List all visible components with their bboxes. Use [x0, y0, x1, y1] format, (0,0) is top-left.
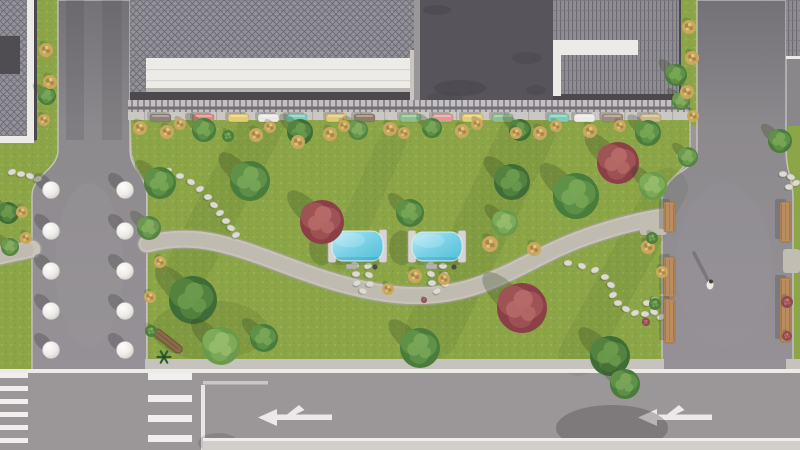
bush-highlight: [387, 130, 390, 133]
bush-body: [383, 122, 397, 136]
pavement-stain: [512, 52, 542, 64]
bush-body: [222, 130, 234, 142]
bush-highlight: [45, 46, 48, 49]
bench-highlight: [550, 115, 567, 117]
bush-body: [642, 318, 650, 326]
bush-highlight: [164, 133, 167, 136]
tree-foliage-light: [772, 138, 780, 146]
canopy-under-shade: [416, 257, 458, 260]
tree-foliage-light: [1, 210, 8, 217]
bush-highlight: [619, 122, 622, 125]
tree-foliage-light: [506, 301, 523, 318]
parapet-tile-strip: [128, 100, 690, 112]
tree-foliage-light: [47, 95, 52, 100]
tree-foliage-light: [504, 222, 512, 230]
road-tire-shading: [102, 0, 122, 140]
tree-foliage-light: [426, 125, 433, 132]
tree-foliage-light: [220, 344, 231, 355]
stepping-stone: [366, 281, 374, 287]
bush-highlight: [149, 293, 152, 296]
bush-highlight: [343, 122, 346, 125]
bush-highlight: [148, 332, 150, 334]
bush-highlight: [159, 258, 162, 261]
bush-body: [160, 125, 174, 139]
building-c-right-parapet: [410, 50, 414, 100]
tree-foliage-light: [352, 127, 359, 134]
bush-body: [264, 121, 276, 133]
tree-foliage-light: [652, 185, 660, 193]
bush-body: [455, 124, 469, 138]
bush-body: [154, 256, 166, 268]
sphere-bollard: [117, 303, 134, 320]
bush-speckle: [415, 275, 419, 279]
bush-body: [144, 291, 156, 303]
bush-body: [43, 75, 57, 89]
bush-highlight: [297, 138, 300, 141]
palm-center: [163, 356, 166, 359]
bush-highlight: [784, 303, 786, 305]
tree-foliage-light: [511, 181, 522, 192]
tree-foliage-light: [407, 342, 421, 356]
bush-speckle: [256, 134, 260, 138]
stepping-stone: [17, 171, 25, 177]
bush-highlight: [49, 78, 52, 81]
pedestrian-head: [709, 280, 713, 284]
bottom-sidewalk: [203, 441, 800, 450]
stepping-stone: [641, 311, 649, 317]
bush-speckle: [167, 131, 171, 135]
stepping-stone: [204, 194, 212, 200]
bush-highlight: [515, 129, 518, 132]
bush-highlight: [424, 298, 425, 299]
tree-foliage-light: [624, 383, 633, 392]
bush-highlight: [23, 239, 25, 241]
bush-highlight: [617, 127, 619, 129]
crosswalk-stripe: [148, 415, 192, 422]
bush-highlight: [255, 131, 258, 134]
waste-bin: [451, 264, 456, 269]
bush-speckle: [590, 130, 594, 134]
bush-highlight: [785, 337, 787, 339]
bush-body: [510, 127, 522, 139]
tree-foliage-light: [500, 177, 512, 189]
stepping-stone: [564, 260, 572, 266]
bush-highlight: [43, 51, 46, 54]
bush-highlight: [691, 54, 694, 57]
bench-highlight: [576, 115, 593, 117]
bush-speckle: [689, 26, 693, 30]
tree-foliage-light: [779, 140, 786, 147]
crosswalk-stripe: [0, 399, 28, 404]
stepping-stone: [352, 271, 360, 277]
bush-body: [291, 135, 305, 149]
bush-highlight: [644, 322, 646, 324]
building-e-roof: [786, 0, 800, 58]
tree-foliage-light: [675, 98, 681, 104]
waste-bin: [372, 264, 377, 269]
bush-body: [38, 114, 50, 126]
bush-body: [382, 283, 394, 295]
bush-highlight: [329, 130, 332, 133]
tree-foliage-light: [141, 225, 149, 233]
tree-foliage-light: [159, 182, 169, 192]
bush-speckle: [151, 330, 154, 333]
bush-highlight: [389, 125, 392, 128]
bush-body: [646, 232, 658, 244]
tree-foliage-light: [605, 157, 619, 171]
building-a-inner-court: [0, 36, 20, 74]
stepping-stone: [428, 280, 436, 286]
right-corner-curb: [786, 359, 800, 370]
site-plan-canvas: [0, 0, 800, 450]
bush-body: [782, 331, 792, 341]
bench-highlight: [642, 115, 659, 117]
bush-highlight: [689, 59, 692, 62]
bush-speckle: [140, 127, 144, 131]
bush-speckle: [620, 125, 623, 128]
canopy-seam: [146, 80, 410, 81]
bench-highlight: [604, 115, 621, 117]
bush-highlight: [589, 127, 592, 130]
bush-highlight: [461, 127, 464, 130]
canopy-seam: [146, 69, 410, 70]
bush-speckle: [180, 123, 183, 126]
bench-highlight: [356, 115, 373, 117]
bush-body: [527, 242, 541, 256]
bush-speckle: [787, 335, 790, 338]
bench-highlight: [152, 115, 169, 117]
bush-highlight: [553, 127, 555, 129]
bench-highlight: [328, 115, 345, 117]
crosswalk-stripe: [0, 386, 28, 391]
tree-foliage-light: [255, 334, 265, 344]
bush-body: [649, 298, 661, 310]
stepping-stone: [222, 218, 230, 224]
bush-speckle: [344, 125, 347, 128]
bush-highlight: [489, 239, 493, 243]
bush-highlight: [651, 234, 654, 237]
bush-highlight: [43, 116, 46, 119]
building-a-edge-shadow: [34, 0, 37, 140]
tree-foliage-light: [644, 182, 654, 192]
bush-highlight: [688, 23, 691, 26]
tree-foliage-light: [682, 154, 689, 161]
canopy-under-shade: [336, 257, 379, 260]
bush-highlight: [157, 263, 159, 265]
sphere-bollard: [117, 182, 134, 199]
bush-highlight: [269, 123, 272, 126]
bush-highlight: [385, 290, 387, 292]
bush-body: [550, 120, 562, 132]
bush-speckle: [330, 133, 334, 137]
bush-highlight: [476, 120, 479, 123]
tree-foliage-light: [41, 93, 47, 99]
bush-highlight: [19, 213, 21, 215]
bush-body: [482, 236, 498, 252]
bush-highlight: [645, 320, 647, 322]
building-a-white-parapet: [27, 0, 34, 137]
tree-foliage-light: [196, 127, 204, 135]
tree-foliage-light: [178, 293, 194, 309]
bush-highlight: [387, 285, 390, 288]
canopy-edge-shade: [146, 88, 410, 92]
building-a-bottom-parapet: [0, 136, 34, 143]
sphere-bollard: [43, 182, 60, 199]
bush-highlight: [179, 120, 182, 123]
bush-highlight: [652, 305, 654, 307]
bush-speckle: [652, 237, 655, 240]
bush-speckle: [556, 125, 559, 128]
bench-highlight: [260, 115, 277, 117]
bush-body: [39, 43, 53, 57]
lane-line-horizontal: [203, 381, 268, 385]
canopy-sheen: [415, 233, 445, 248]
bush-body: [471, 118, 483, 130]
bush-body: [133, 121, 147, 135]
tree-foliage-light: [308, 216, 323, 231]
tree-foliage-light: [409, 212, 417, 220]
tree-foliage-light: [249, 179, 261, 191]
tree-foliage-light: [681, 100, 686, 105]
stepping-stone: [176, 173, 184, 179]
bush-speckle: [646, 321, 648, 323]
bush-highlight: [692, 112, 695, 115]
bush-speckle: [22, 211, 25, 214]
bush-highlight: [225, 137, 227, 139]
bush-body: [687, 110, 699, 122]
tree-foliage-light: [575, 194, 589, 208]
bush-body: [145, 325, 157, 337]
sphere-bollard: [117, 263, 134, 280]
bush-speckle: [298, 141, 302, 145]
crosswalk-stripe: [0, 438, 28, 443]
bush-speckle: [26, 237, 29, 240]
crosswalk-stripe: [0, 425, 28, 430]
tree-foliage-light: [321, 220, 334, 233]
bush-highlight: [537, 134, 540, 137]
bush-speckle: [516, 132, 519, 135]
tree-foliage-light: [150, 178, 161, 189]
bush-highlight: [786, 298, 789, 301]
bush-speckle: [228, 135, 231, 138]
bush-speckle: [444, 278, 447, 281]
tree-foliage-light: [597, 350, 611, 364]
bush-highlight: [786, 333, 788, 335]
mini-bench: [426, 264, 437, 269]
bush-highlight: [166, 128, 169, 131]
stepping-stone: [614, 300, 622, 306]
mini-bench: [346, 264, 357, 269]
tree-foliage-light: [521, 306, 536, 321]
bush-highlight: [661, 268, 664, 271]
tree-foliage-light: [192, 298, 206, 312]
bush-highlight: [654, 300, 657, 303]
bush-body: [682, 20, 696, 34]
bush-highlight: [412, 277, 415, 280]
bush-speckle: [160, 261, 163, 264]
bush-speckle: [662, 271, 665, 274]
bush-highlight: [21, 208, 24, 211]
tree-foliage-light: [237, 175, 251, 189]
bush-highlight: [686, 88, 689, 91]
tree-foliage-light: [7, 212, 14, 219]
sphere-bollard: [43, 223, 60, 240]
bench-highlight: [230, 115, 247, 117]
bench-highlight: [434, 115, 451, 117]
sphere-bollard: [117, 342, 134, 359]
bush-body: [174, 118, 186, 130]
bush-speckle: [424, 300, 426, 302]
crosswalk-stripe: [148, 395, 192, 402]
bush-highlight: [441, 280, 443, 282]
pavilion-canopy: [389, 231, 466, 270]
bush-body: [656, 266, 668, 278]
road-tire-shading: [66, 0, 84, 140]
sphere-bollard: [117, 223, 134, 240]
tree-foliage-light: [148, 227, 155, 234]
bush-highlight: [690, 117, 692, 119]
bush-highlight: [41, 121, 43, 123]
tree-foliage-light: [669, 72, 676, 79]
bush-body: [438, 273, 450, 285]
bush-body: [781, 296, 793, 308]
pavement-stain: [423, 5, 451, 15]
bush-speckle: [787, 301, 790, 304]
bush-speckle: [270, 126, 273, 129]
bush-highlight: [513, 134, 515, 136]
bush-body: [533, 126, 547, 140]
tree-foliage-light: [647, 132, 655, 140]
bush-highlight: [486, 245, 489, 248]
bush-highlight: [341, 127, 343, 129]
bush-speckle: [648, 246, 652, 250]
bush-body: [16, 206, 28, 218]
bush-highlight: [403, 129, 406, 132]
sphere-bollard: [43, 303, 60, 320]
bush-speckle: [50, 81, 54, 85]
bush-highlight: [253, 136, 256, 139]
bush-speckle: [540, 132, 544, 136]
bush-speckle: [46, 49, 50, 53]
bench-highlight: [195, 115, 212, 117]
tree-foliage-light: [497, 219, 506, 228]
bush-highlight: [267, 128, 269, 130]
bush-body: [20, 232, 32, 244]
tree-foliage-light: [358, 129, 364, 135]
bush-speckle: [534, 248, 538, 252]
stepping-stone: [785, 184, 793, 190]
bush-speckle: [687, 91, 691, 95]
tree-foliage-light: [4, 244, 10, 250]
bush-highlight: [531, 250, 534, 253]
bush-highlight: [177, 125, 179, 127]
stepping-stone: [601, 274, 609, 280]
sphere-bollard: [43, 342, 60, 359]
bush-speckle: [150, 296, 153, 299]
stepping-stone: [779, 171, 787, 177]
pavement-stain: [526, 85, 546, 95]
bush-highlight: [423, 300, 424, 301]
building-d-white-edge: [553, 40, 561, 96]
tree-foliage-light: [209, 340, 222, 353]
tree-foliage-light: [688, 156, 694, 162]
sphere-bollard: [43, 263, 60, 280]
building-d-white-band: [557, 40, 638, 55]
tree-foliage-light: [561, 189, 577, 205]
bush-speckle: [490, 243, 494, 247]
bush-body: [583, 124, 597, 138]
tree-foliage-light: [640, 129, 649, 138]
crosswalk-stripe: [148, 373, 192, 380]
bush-highlight: [47, 83, 50, 86]
tree-foliage-light: [401, 209, 411, 219]
plaza-tile-patch: [783, 249, 800, 273]
bush-highlight: [587, 132, 590, 135]
bush-highlight: [25, 234, 28, 237]
bush-speckle: [390, 128, 394, 132]
crosswalk-stripe: [0, 412, 28, 417]
tree-foliage-light: [419, 346, 431, 358]
road-edge-line: [0, 369, 800, 373]
bush-body: [421, 297, 427, 303]
bush-highlight: [539, 129, 542, 132]
bush-highlight: [659, 273, 661, 275]
bush-body: [685, 51, 699, 65]
bush-highlight: [327, 135, 330, 138]
bush-body: [249, 128, 263, 142]
bush-highlight: [227, 132, 230, 135]
bush-body: [398, 127, 410, 139]
bush-highlight: [443, 275, 446, 278]
bush-highlight: [684, 93, 687, 96]
bush-highlight: [401, 134, 403, 136]
bush-highlight: [533, 245, 536, 248]
tree-foliage-light: [432, 127, 438, 133]
bush-speckle: [388, 288, 391, 291]
bush-highlight: [645, 248, 648, 251]
bush-highlight: [147, 298, 149, 300]
bush-body: [338, 120, 350, 132]
bush-highlight: [139, 124, 142, 127]
bush-body: [614, 120, 626, 132]
bush-body: [408, 269, 422, 283]
bush-speckle: [462, 130, 466, 134]
tree-foliage-light: [263, 337, 271, 345]
aerial-site-render: [0, 0, 800, 450]
bush-highlight: [137, 129, 140, 132]
building-e-edge: [786, 56, 800, 59]
crosswalk-stripe: [0, 373, 28, 378]
bush-highlight: [295, 143, 298, 146]
crosswalk-stripe: [148, 435, 192, 442]
bush-highlight: [459, 132, 462, 135]
bush-speckle: [693, 115, 696, 118]
tree-foliage-light: [10, 246, 15, 251]
tree-foliage-light: [617, 161, 630, 174]
bush-speckle: [404, 132, 407, 135]
bush-highlight: [555, 122, 558, 125]
bush-highlight: [686, 28, 689, 31]
bush-highlight: [150, 327, 153, 330]
bush-highlight: [474, 125, 476, 127]
bush-speckle: [692, 57, 696, 61]
building-c-white-canopy: [146, 58, 410, 92]
bush-speckle: [477, 123, 480, 126]
bush-speckle: [655, 303, 658, 306]
bush-highlight: [414, 272, 417, 275]
tree-foliage-light: [615, 380, 625, 390]
tree-foliage-light: [675, 74, 682, 81]
